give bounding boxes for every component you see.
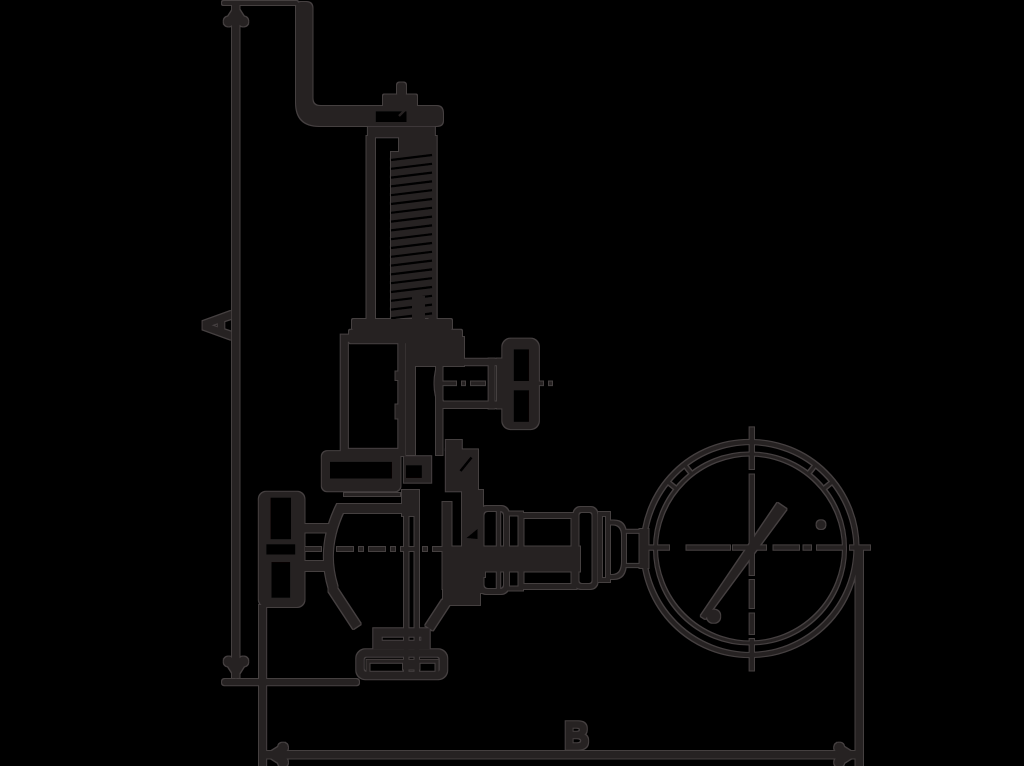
- svg-text:B: B: [565, 715, 589, 757]
- svg-text:A: A: [197, 312, 239, 339]
